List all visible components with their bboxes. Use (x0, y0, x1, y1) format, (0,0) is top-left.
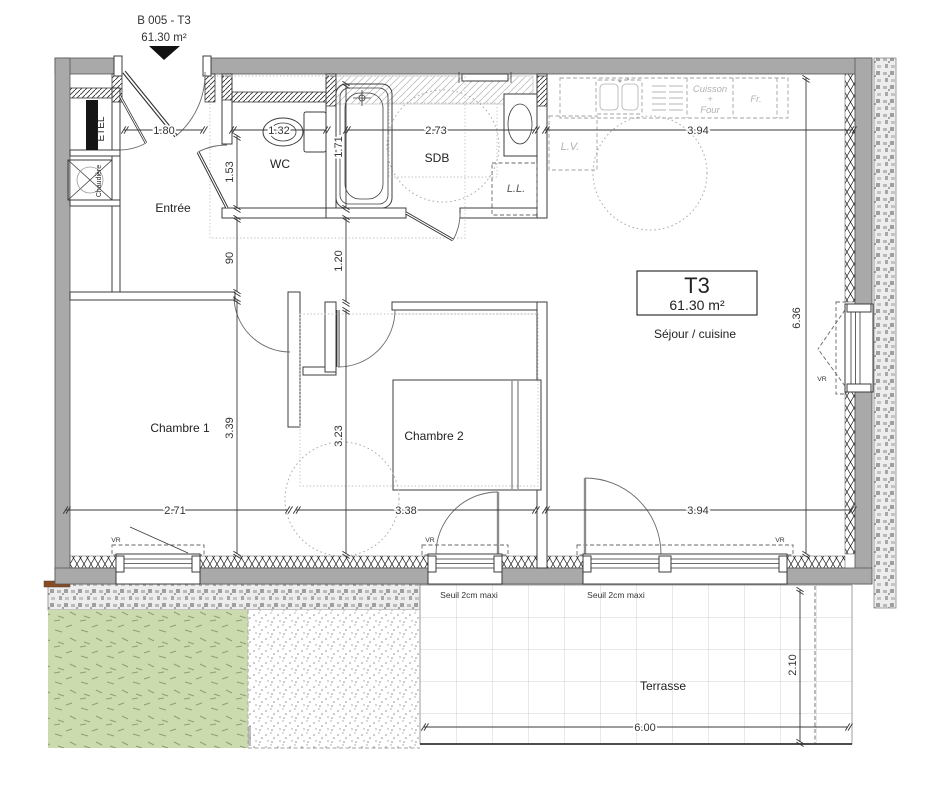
dim-entree-width: 1.80 (153, 125, 174, 137)
dim-corridor: 90 (224, 252, 236, 264)
dim-hall: 1.20 (333, 250, 345, 271)
dim-chambre2-depth: 3.23 (333, 425, 345, 446)
micro-label (248, 726, 251, 746)
dishwasher-label: L.V. (561, 141, 580, 153)
dim-sdb-width: 2.73 (425, 125, 446, 137)
masonry-band-bottom (48, 584, 420, 610)
floor-plan-page: 1.80 1.32 2.73 3.94 1.53 90 3.39 1.71 1.… (0, 0, 950, 800)
lot-label: B 005 - T3 (137, 15, 191, 27)
etel-label: ETEL (96, 116, 107, 141)
dim-chambre2-width: 3.38 (395, 505, 416, 517)
unit-area: 61.30 m² (669, 297, 725, 313)
dim-sejour-width: 3.94 (687, 505, 708, 517)
gravel-area (248, 610, 420, 748)
dim-wc-depth: 1.53 (224, 161, 236, 182)
unit-type: T3 (684, 273, 710, 298)
unit-box: T3 61.30 m² (637, 271, 757, 315)
fridge-label: Fr. (750, 94, 761, 105)
masonry-band-right (874, 58, 896, 608)
chaudiere-label: Chaudière (96, 165, 103, 197)
room-label-sdb: SDB (425, 151, 450, 165)
room-label-chambre1: Chambre 1 (150, 421, 210, 435)
room-label-terrasse: Terrasse (640, 679, 686, 693)
dim-chambre1-width: 2.71 (164, 505, 185, 517)
dim-terrace-depth: 2.10 (787, 654, 799, 675)
vr-label-3: VR (775, 537, 785, 544)
hob-label-line3: Four (700, 105, 720, 116)
wc-lintel-hatch (222, 92, 332, 102)
washer-label: L.L. (507, 183, 525, 195)
vr-label-2: VR (425, 537, 435, 544)
dim-chambre1-depth: 3.39 (224, 417, 236, 438)
seuil-label-2: Seuil 2cm maxi (587, 590, 645, 600)
washbasin (504, 94, 537, 156)
hob-label-line2: + (707, 94, 713, 105)
room-label-sejour: Séjour / cuisine (654, 327, 736, 341)
dim-wc-width: 1.32 (268, 125, 289, 137)
lawn-area (48, 610, 248, 748)
room-label-entree: Entrée (155, 201, 191, 215)
dim-sejour-depth: 6.36 (791, 307, 803, 328)
vr-label-1: VR (111, 537, 121, 544)
dim-cuisine-width: 3.94 (687, 125, 708, 137)
seuil-label-1: Seuil 2cm maxi (440, 590, 498, 600)
dim-terrace-width: 6.00 (634, 722, 655, 734)
vr-label-4: VR (817, 376, 827, 383)
lot-area-label: 61.30 m² (141, 32, 187, 44)
room-label-wc: WC (270, 157, 290, 171)
room-label-chambre2: Chambre 2 (404, 429, 464, 443)
dim-bath: 1.71 (333, 136, 345, 157)
floor-plan-svg: 1.80 1.32 2.73 3.94 1.53 90 3.39 1.71 1.… (0, 0, 950, 800)
towel-radiator (459, 72, 511, 83)
